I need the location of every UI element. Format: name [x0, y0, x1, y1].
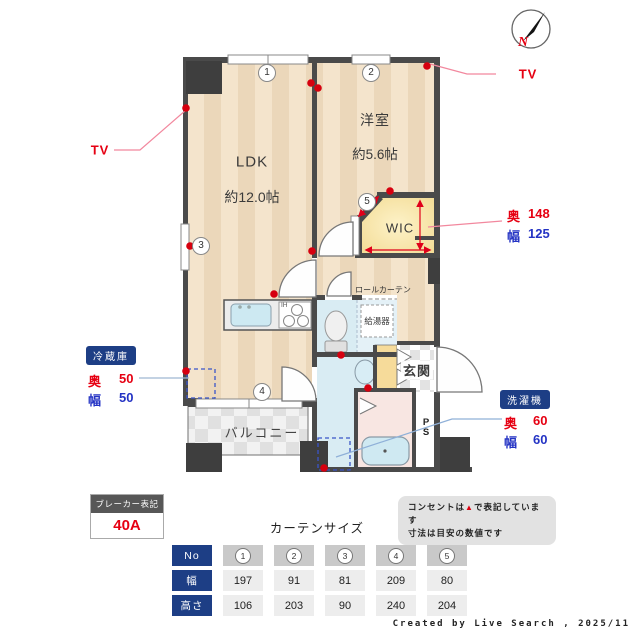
no-cell: 3 [325, 545, 365, 566]
depth-label: 奥 [507, 206, 520, 225]
ldk-floor [188, 63, 312, 403]
bedroom-size-label: 約5.6帖 [352, 143, 398, 163]
tv-left-leader [114, 110, 186, 150]
width-cell: 91 [274, 570, 314, 591]
wic-depth-dim: 奥 148 [507, 206, 550, 225]
washer-depth-dim: 奥 60 [504, 413, 547, 432]
height-cell: 204 [427, 595, 467, 616]
outlet-dot [314, 84, 322, 92]
hall-floor-2 [397, 295, 434, 343]
bedroom-label: 洋室 [360, 110, 390, 130]
depth-value: 148 [528, 206, 550, 225]
kitchen-counter [224, 300, 312, 330]
no-cell: 1 [223, 545, 263, 566]
wic-width-dim: 幅 125 [507, 226, 550, 245]
width-cell: 209 [376, 570, 416, 591]
width-value: 60 [533, 432, 547, 451]
outlet-dot [182, 104, 190, 112]
width-label: 幅 [504, 432, 517, 451]
outlet-dot [364, 384, 372, 392]
row-header-height: 高さ [172, 595, 212, 616]
washer-badge: 洗濯機 [500, 390, 550, 409]
ih-label: IH [281, 302, 288, 309]
fridge-badge: 冷蔵庫 [86, 346, 136, 365]
depth-value: 50 [119, 371, 133, 390]
depth-label: 奥 [504, 413, 517, 432]
water-heater-label: 給湯器 [364, 315, 390, 327]
curtain-row-no: No 1 2 3 4 5 [172, 545, 467, 566]
pillar-top-left [186, 61, 222, 94]
north-label: N [518, 35, 528, 51]
curtain-size-table: No 1 2 3 4 5 幅 197 91 81 209 80 高さ 106 2… [172, 545, 467, 620]
breaker-value: 40A [91, 513, 163, 538]
entrance-door [437, 347, 482, 392]
fridge-depth-dim: 奥 50 [88, 371, 133, 390]
ldk-size-label: 約12.0帖 [224, 187, 279, 207]
shoe-closet [375, 345, 397, 390]
window-number-4: 4 [253, 383, 271, 401]
washbasin [355, 360, 375, 384]
note-text: コンセントは [408, 502, 465, 512]
window-number-1: 1 [258, 64, 276, 82]
width-label: 幅 [507, 226, 520, 245]
outlet-dot [182, 367, 190, 375]
balcony-label: バルコニー [225, 423, 300, 442]
wic-label: WIC [386, 221, 414, 236]
ldk-label: LDK [236, 154, 268, 171]
circled-number: 1 [235, 548, 251, 564]
pillar-mid-right [428, 258, 440, 284]
window-2 [352, 55, 390, 64]
width-label: 幅 [88, 390, 101, 409]
window-number-3: 3 [192, 237, 210, 255]
outlet-dot [320, 464, 328, 472]
height-cell: 90 [325, 595, 365, 616]
width-cell: 81 [325, 570, 365, 591]
washer-width-dim: 幅 60 [504, 432, 547, 451]
roll-curtain-label: ロールカーテン [355, 285, 411, 296]
outlet-dot [308, 247, 316, 255]
ps-label: PS [421, 418, 432, 438]
toilet-fixture [325, 311, 347, 352]
depth-label: 奥 [88, 371, 101, 390]
height-cell: 240 [376, 595, 416, 616]
circled-number: 4 [388, 548, 404, 564]
no-cell: 5 [427, 545, 467, 566]
width-value: 50 [119, 390, 133, 409]
tv-label-left: TV [91, 143, 110, 158]
row-header-no: No [172, 545, 212, 566]
fridge-width-dim: 幅 50 [88, 390, 133, 409]
depth-value: 60 [533, 413, 547, 432]
curtain-row-height: 高さ 106 203 90 240 204 [172, 595, 467, 616]
window-number-2: 2 [362, 64, 380, 82]
note-box: コンセントは▲で表記しています 寸法は目安の数値です [398, 496, 556, 545]
width-cell: 197 [223, 570, 263, 591]
window-number-5: 5 [358, 193, 376, 211]
entrance-label: 玄関 [401, 361, 433, 380]
outlet-dot [307, 79, 315, 87]
height-cell: 106 [223, 595, 263, 616]
outlet-triangle-icon: ▲ [465, 503, 474, 512]
width-cell: 80 [427, 570, 467, 591]
outlet-dot [423, 62, 431, 70]
credit-line: Created by Live Search , 2025/11 [393, 619, 630, 629]
circled-number: 3 [337, 548, 353, 564]
row-header-width: 幅 [172, 570, 212, 591]
width-value: 125 [528, 226, 550, 245]
height-cell: 203 [274, 595, 314, 616]
pillar-bottom-right [440, 437, 470, 472]
pillar-bottom-left [186, 443, 222, 472]
circled-number: 5 [439, 548, 455, 564]
tv-label-right: TV [519, 67, 538, 82]
outlet-dot [270, 290, 278, 298]
breaker-title: ブレーカー表記 [91, 495, 163, 513]
no-cell: 4 [376, 545, 416, 566]
outlet-dot [337, 351, 345, 359]
breaker-box: ブレーカー表記 40A [90, 494, 164, 539]
note-line-1: コンセントは▲で表記しています [408, 501, 546, 527]
note-line-2: 寸法は目安の数値です [408, 527, 546, 540]
circled-number: 2 [286, 548, 302, 564]
outlet-dot [386, 187, 394, 195]
curtain-row-width: 幅 197 91 81 209 80 [172, 570, 467, 591]
no-cell: 2 [274, 545, 314, 566]
curtain-table-title: カーテンサイズ [270, 518, 364, 537]
floorplan-page: LDK 約12.0帖 洋室 約5.6帖 WIC 玄関 バルコニー PS 給湯器 … [0, 0, 640, 640]
